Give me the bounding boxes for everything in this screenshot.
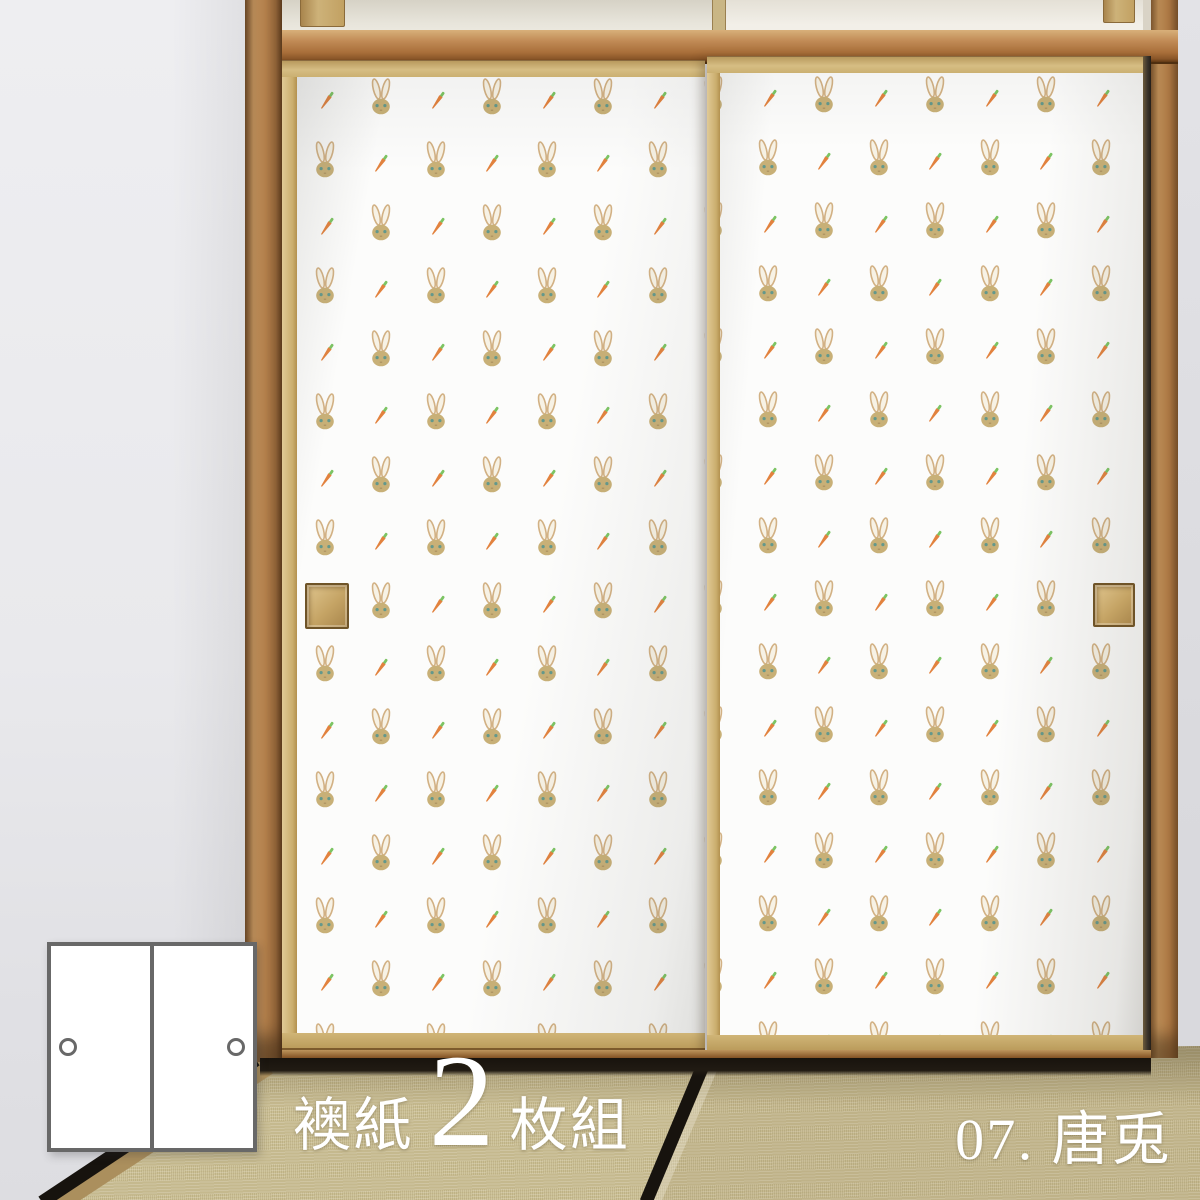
transom-handle-right <box>1103 0 1135 23</box>
transom-panel-left <box>282 0 712 32</box>
diagram-panel-right <box>154 946 253 1148</box>
rabbit-pattern <box>720 72 1143 1037</box>
fusuma-door-right <box>707 56 1151 1052</box>
tatami-room-scene: 襖紙 2 枚組 07. 唐兎 <box>0 0 1200 1200</box>
diagram-handle-circle-left <box>59 1038 77 1056</box>
door-right-handle <box>1093 583 1135 627</box>
set-unit-text: 枚組 <box>510 1097 631 1155</box>
door-left-handle <box>305 583 349 629</box>
transom-divider <box>712 0 726 32</box>
door-left-stile <box>282 60 297 1050</box>
door-left-top-rail <box>282 60 705 77</box>
transom-panel-right <box>724 0 1143 31</box>
left-wood-pillar <box>245 0 282 1062</box>
door-right-stile <box>707 56 720 1052</box>
fusuma-door-left <box>282 60 705 1050</box>
door-right-top-rail <box>707 56 1151 73</box>
door-left-paper <box>297 76 705 1035</box>
door-right-edge-gap <box>1143 56 1151 1052</box>
right-wood-pillar <box>1150 0 1178 1058</box>
door-right-paper <box>720 72 1143 1037</box>
set-material-text: 襖紙 <box>293 1097 414 1155</box>
rabbit-pattern <box>297 76 705 1035</box>
set-count-number: 2 <box>429 1040 495 1163</box>
layout-diagram <box>47 942 257 1152</box>
transom-handle-left <box>300 0 345 27</box>
set-label: 襖紙 2 枚組 <box>293 1040 630 1163</box>
pattern-number-label: 07. 唐兎 <box>955 1092 1172 1176</box>
right-wall <box>1178 0 1200 1056</box>
diagram-handle-circle-right <box>227 1038 245 1056</box>
diagram-panel-left <box>51 946 150 1148</box>
